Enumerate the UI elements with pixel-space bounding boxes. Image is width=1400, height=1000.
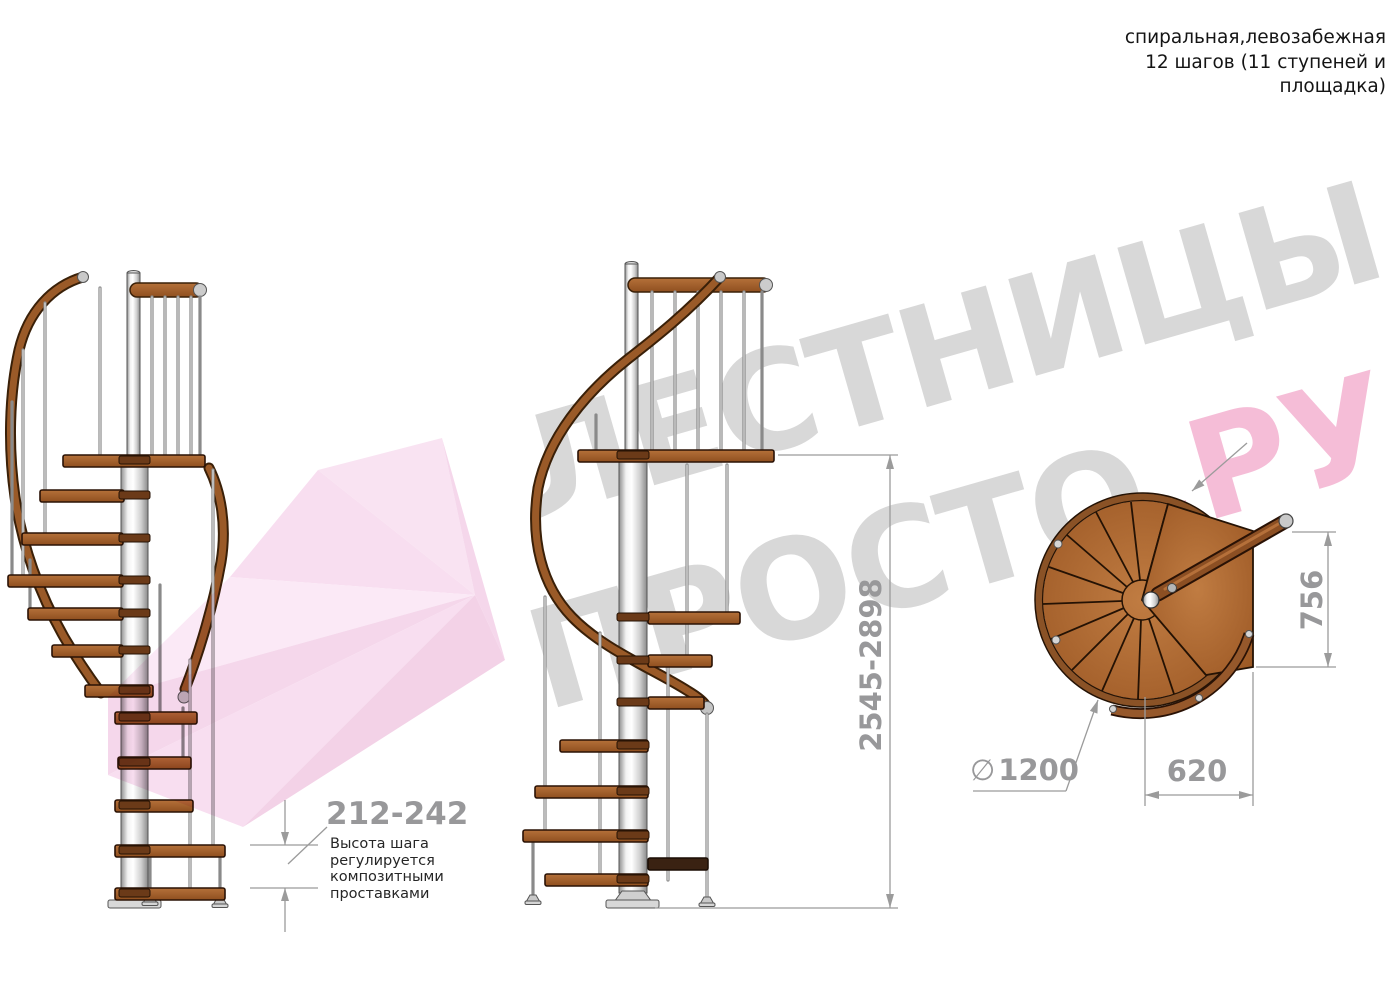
drawing-sheet: ЛЕСТНИЦЫ ПРОСТО.РУ	[0, 0, 1400, 1000]
landing-depth-value: 756	[1295, 540, 1329, 660]
diameter-symbol: ∅	[970, 753, 995, 787]
diameter-number: 1200	[998, 753, 1079, 787]
title-note-line1: спиральная,левозабежная	[1125, 26, 1386, 51]
label-layer: спиральная,левозабежная 12 шагов (11 сту…	[0, 0, 1400, 1000]
step-height-note-line2: регулируется	[330, 853, 444, 870]
step-height-note-line3: композитными	[330, 869, 444, 886]
step-height-value: 212-242	[326, 796, 468, 832]
title-note-line2: 12 шагов (11 ступеней и	[1125, 51, 1386, 76]
step-height-note-line1: Высота шага	[330, 836, 444, 853]
step-height-note-line4: проставками	[330, 886, 444, 903]
title-note-line3: площадка)	[1125, 75, 1386, 100]
step-height-note: Высота шага регулируется композитными пр…	[330, 836, 444, 902]
title-note: спиральная,левозабежная 12 шагов (11 сту…	[1125, 26, 1386, 100]
diameter-value: ∅1200	[970, 753, 1079, 787]
total-height-value: 2545-2898	[854, 535, 888, 795]
step-width-value: 620	[1137, 754, 1257, 788]
